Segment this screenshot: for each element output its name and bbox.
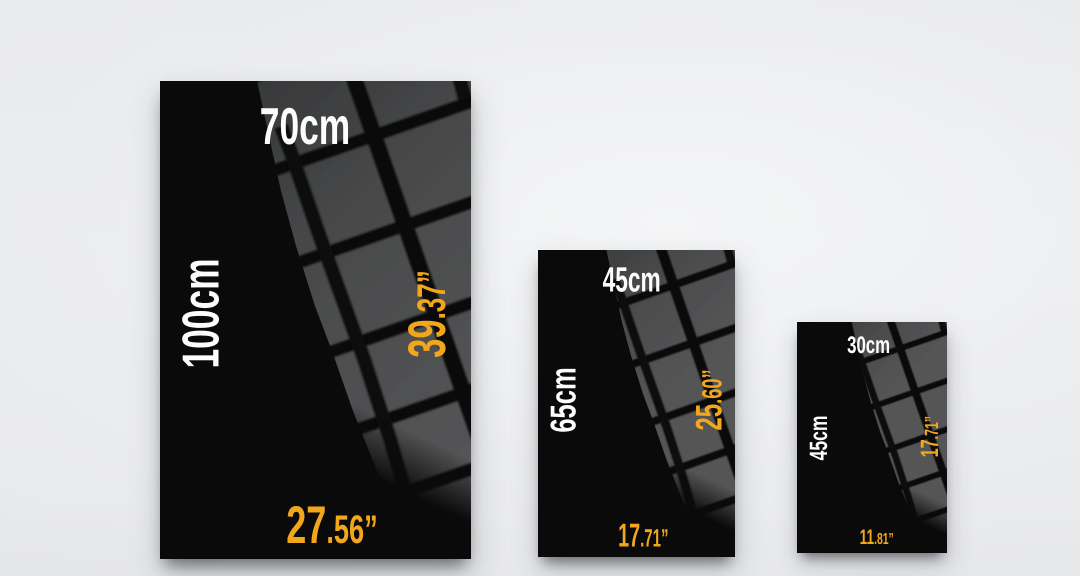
svg-text:100cm: 100cm [173,258,231,368]
svg-text:45cm: 45cm [603,261,661,300]
svg-text:45cm: 45cm [805,416,833,461]
svg-text:65cm: 65cm [543,367,584,432]
svg-text:70cm: 70cm [260,98,350,156]
svg-text:30cm: 30cm [847,332,890,359]
